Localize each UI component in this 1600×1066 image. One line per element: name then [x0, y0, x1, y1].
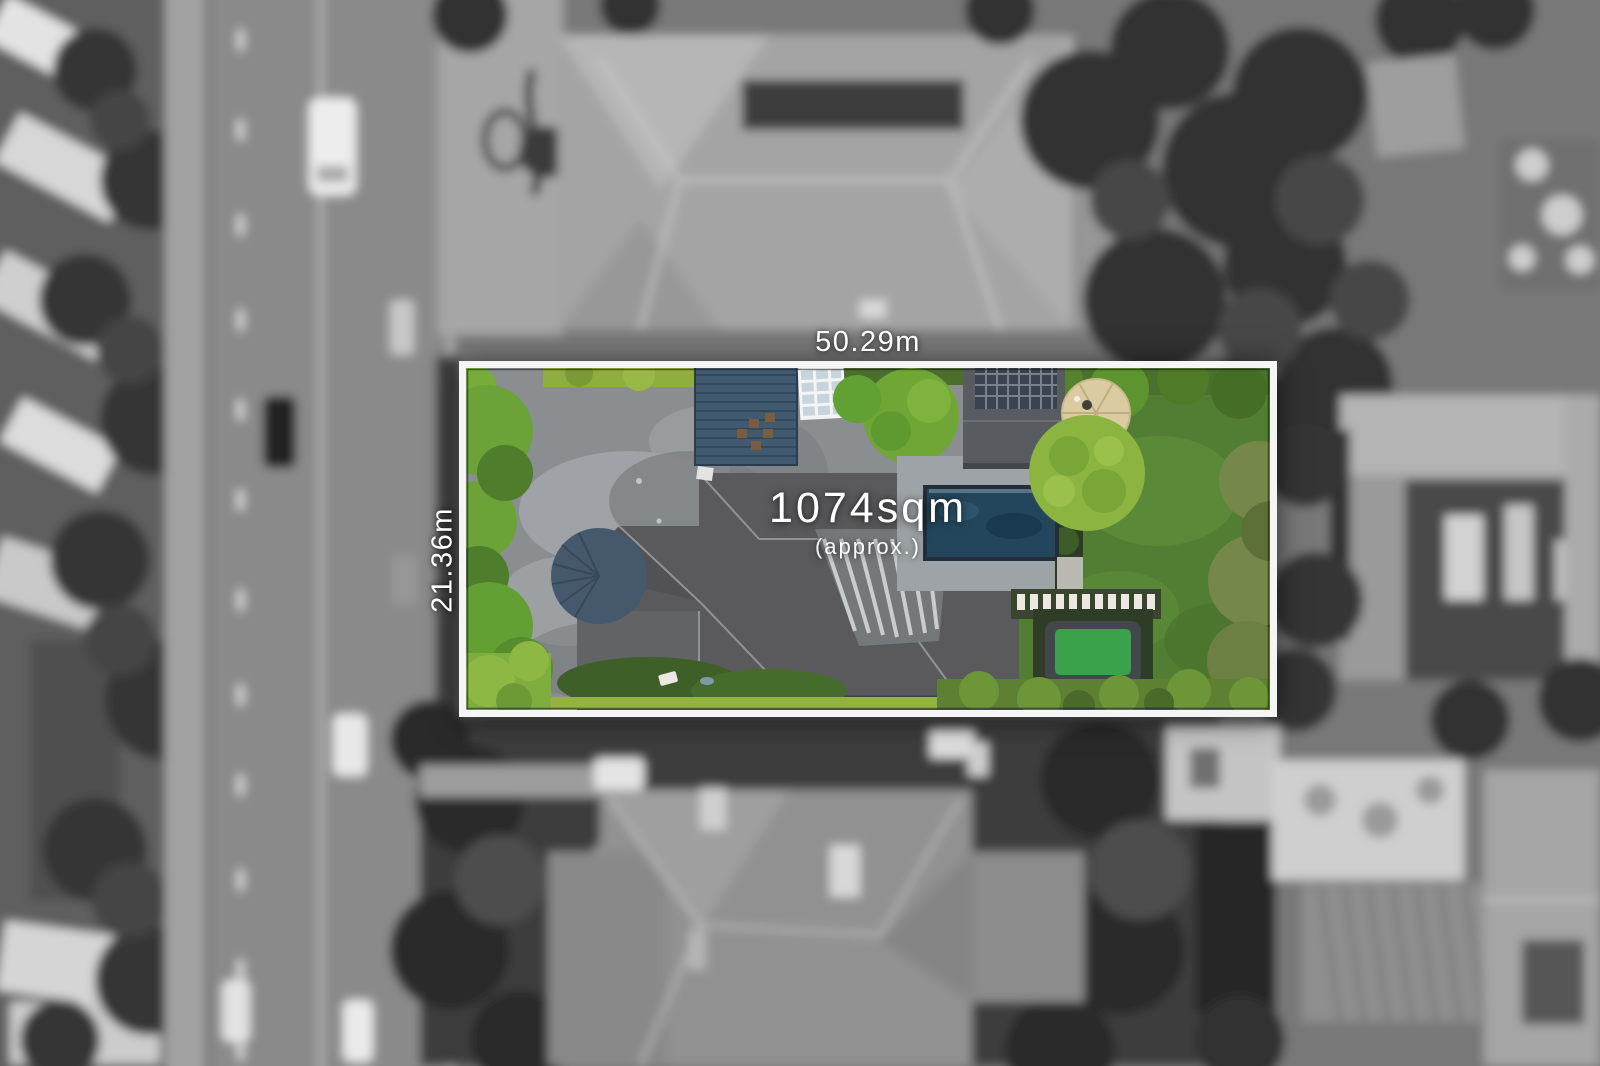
white-car-3: [343, 1000, 373, 1062]
parked-car: [594, 758, 644, 790]
gravel-strip: [1057, 557, 1083, 591]
trampoline: [1045, 621, 1141, 683]
top-neighbor-house: [438, 0, 1135, 335]
dark-car: [263, 396, 296, 468]
depth-dimension-label: 21.36m: [427, 507, 460, 613]
land-area-label: 1074sqm (approx.): [459, 486, 1277, 560]
land-area-value: 1074sqm: [459, 486, 1277, 531]
white-car: [333, 714, 367, 776]
land-area-qualifier: (approx.): [459, 534, 1277, 560]
rooftop-vent: [696, 466, 714, 481]
aerial-property-photo: 50.29m 21.36m 1074sqm (approx.): [0, 0, 1600, 1066]
solar-panels: [742, 80, 964, 130]
white-car-2: [222, 980, 250, 1042]
garage-roof: [695, 367, 797, 465]
footpath: [165, 0, 210, 1066]
frontage-dimension-label: 50.29m: [459, 326, 1277, 359]
